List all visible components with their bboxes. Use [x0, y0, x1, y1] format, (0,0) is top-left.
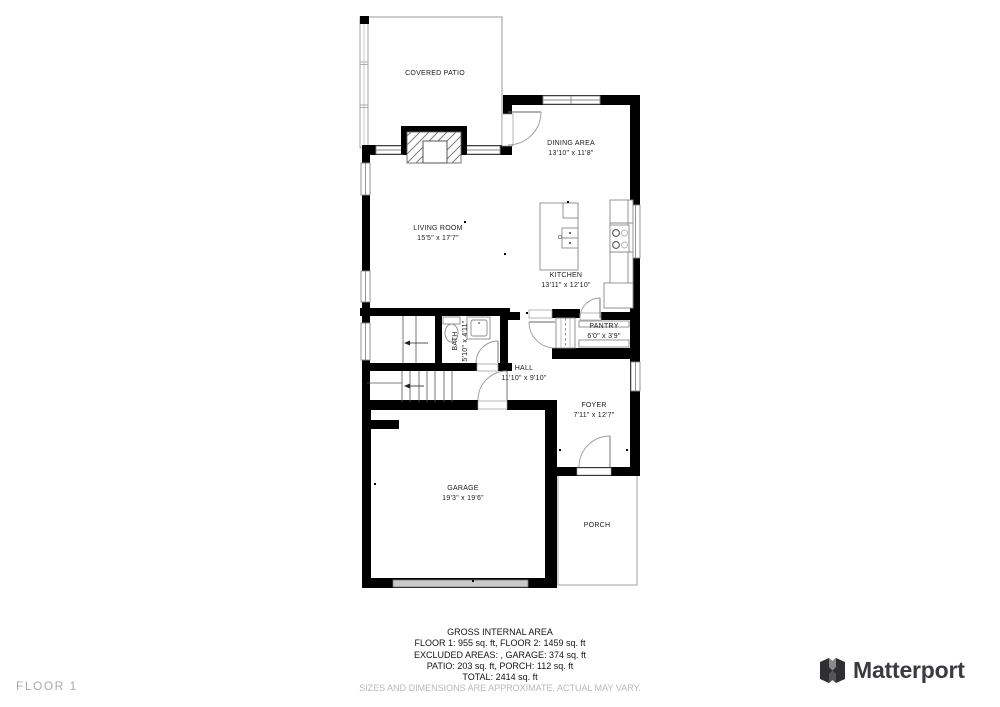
floor-plan-drawing [0, 0, 1000, 707]
fireplace [401, 126, 467, 163]
room-label-dining-area: DINING AREA 13'10" x 11'8" [547, 139, 595, 159]
area-summary: GROSS INTERNAL AREA FLOOR 1: 955 sq. ft,… [359, 627, 641, 695]
room-dims: 15'5" x 17'7" [413, 234, 462, 244]
room-name: DINING AREA [547, 139, 595, 149]
bath-door-arc [476, 341, 498, 363]
closet [556, 318, 575, 348]
room-label-bath: BATH 5'10" x 4'11" [451, 320, 471, 361]
room-dims: 19'3" x 19'6" [442, 494, 484, 504]
room-name: FOYER [573, 401, 614, 411]
room-label-foyer: FOYER 7'11" x 12'7" [573, 401, 614, 421]
room-name: PANTRY [587, 322, 620, 332]
room-label-kitchen: KITCHEN 13'11" x 12'10" [541, 271, 590, 291]
room-name: HALL [501, 364, 546, 374]
disclaimer-text: SIZES AND DIMENSIONS ARE APPROXIMATE, AC… [359, 683, 641, 694]
room-label-hall: HALL 11'10" x 9'10" [501, 364, 546, 384]
room-name: KITCHEN [541, 271, 590, 281]
room-label-porch: PORCH [584, 521, 611, 531]
room-dims: 5'10" x 4'11" [461, 320, 471, 361]
room-name: LIVING ROOM [413, 224, 462, 234]
matterport-logo: Matterport [819, 657, 965, 684]
room-name: COVERED PATIO [405, 69, 465, 79]
garage-vehicle-door [393, 580, 528, 587]
kitchen-counter [604, 200, 633, 308]
room-label-garage: GARAGE 19'3" x 19'6" [442, 484, 484, 504]
matterport-icon [819, 657, 846, 684]
room-label-covered-patio: COVERED PATIO [405, 69, 465, 79]
hall-closet-door-arc [529, 322, 555, 348]
room-label-living-room: LIVING ROOM 15'5" x 17'7" [413, 224, 462, 244]
area-summary-line: PATIO: 203 sq. ft, PORCH: 112 sq. ft [359, 661, 641, 672]
front-door-arc [579, 436, 610, 467]
area-summary-line: EXCLUDED AREAS: , GARAGE: 374 sq. ft [359, 650, 641, 661]
area-summary-line: FLOOR 1: 955 sq. ft, FLOOR 2: 1459 sq. f… [359, 638, 641, 649]
room-dims: 7'11" x 12'7" [573, 411, 614, 421]
floorplan-page: COVERED PATIO DINING AREA 13'10" x 11'8"… [0, 0, 1000, 707]
area-summary-title: GROSS INTERNAL AREA [359, 627, 641, 638]
room-name: GARAGE [442, 484, 484, 494]
cooktop-icon [610, 225, 629, 252]
room-dims: 6'0" x 3'9" [587, 332, 620, 342]
matterport-wordmark: Matterport [853, 657, 965, 684]
room-name: PORCH [584, 521, 611, 531]
room-dims: 13'11" x 12'10" [541, 281, 590, 291]
room-label-pantry: PANTRY 6'0" x 3'9" [587, 322, 620, 342]
room-dims: 13'10" x 11'8" [547, 149, 595, 159]
room-name: BATH [451, 320, 461, 361]
room-dims: 11'10" x 9'10" [501, 374, 546, 384]
floor-label: FLOOR 1 [16, 679, 78, 693]
area-summary-line: TOTAL: 2414 sq. ft [359, 672, 641, 683]
kitchen-island [540, 203, 578, 270]
